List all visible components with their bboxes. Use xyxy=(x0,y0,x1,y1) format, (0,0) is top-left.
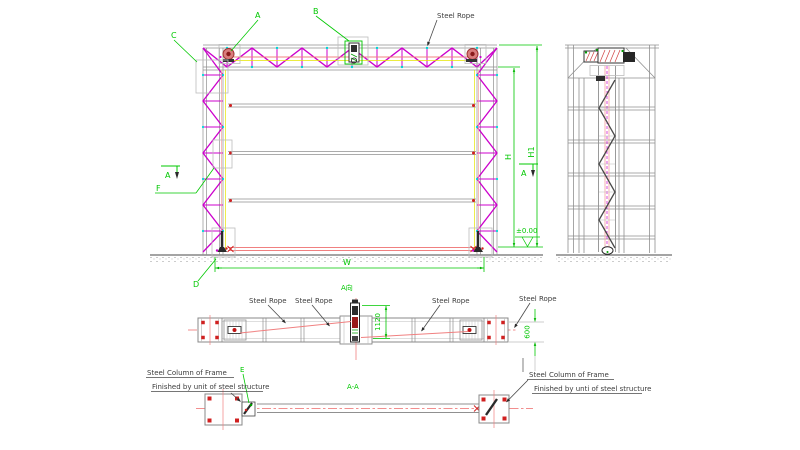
section-right-column xyxy=(479,390,509,428)
detail-label-f: F xyxy=(156,184,161,193)
detail-label-e: E xyxy=(240,366,244,374)
detail-label-d: D xyxy=(193,280,199,289)
detail-label-c: C xyxy=(171,31,177,40)
side-bottom-sheave xyxy=(602,247,613,255)
right-note-line2: Finished by unti of steel structure xyxy=(534,385,651,393)
steel-rope-label-3: Steel Rope xyxy=(432,297,470,305)
left-note-line1: Steel Column of Frame xyxy=(147,369,227,377)
dim-h-label: H xyxy=(504,154,513,160)
plan-view-label: A向 xyxy=(341,283,353,292)
steel-rope-label-1: Steel Rope xyxy=(249,297,287,305)
section-view-label: A-A xyxy=(347,383,359,391)
detail-label-b: B xyxy=(313,7,319,16)
steel-rope-label-2: Steel Rope xyxy=(295,297,333,305)
section-marker-a-right-label: A xyxy=(521,169,527,178)
dim-h1-label: H1 xyxy=(527,146,536,157)
dim-w-label: W xyxy=(343,258,351,267)
drawing-background xyxy=(0,0,800,450)
dim-1120-label: 1120 xyxy=(374,313,382,331)
left-note-line2: Finished by unit of steel structure xyxy=(152,383,269,391)
detail-label-a: A xyxy=(255,11,261,20)
section-marker-a-left-label: A xyxy=(165,171,171,180)
cad-drawing-canvas: W H H1 ±0.00 A A xyxy=(0,0,800,450)
cad-drawing-page: W H H1 ±0.00 A A xyxy=(0,0,800,450)
steel-rope-label-4: Steel Rope xyxy=(519,295,557,303)
steel-rope-label-front: Steel Rope xyxy=(437,12,475,20)
ground-line-side xyxy=(556,255,672,263)
level-mark-label: ±0.00 xyxy=(516,227,537,235)
dim-600-label: 600 xyxy=(524,325,532,338)
right-note-line1: Steel Column of Frame xyxy=(529,371,609,379)
